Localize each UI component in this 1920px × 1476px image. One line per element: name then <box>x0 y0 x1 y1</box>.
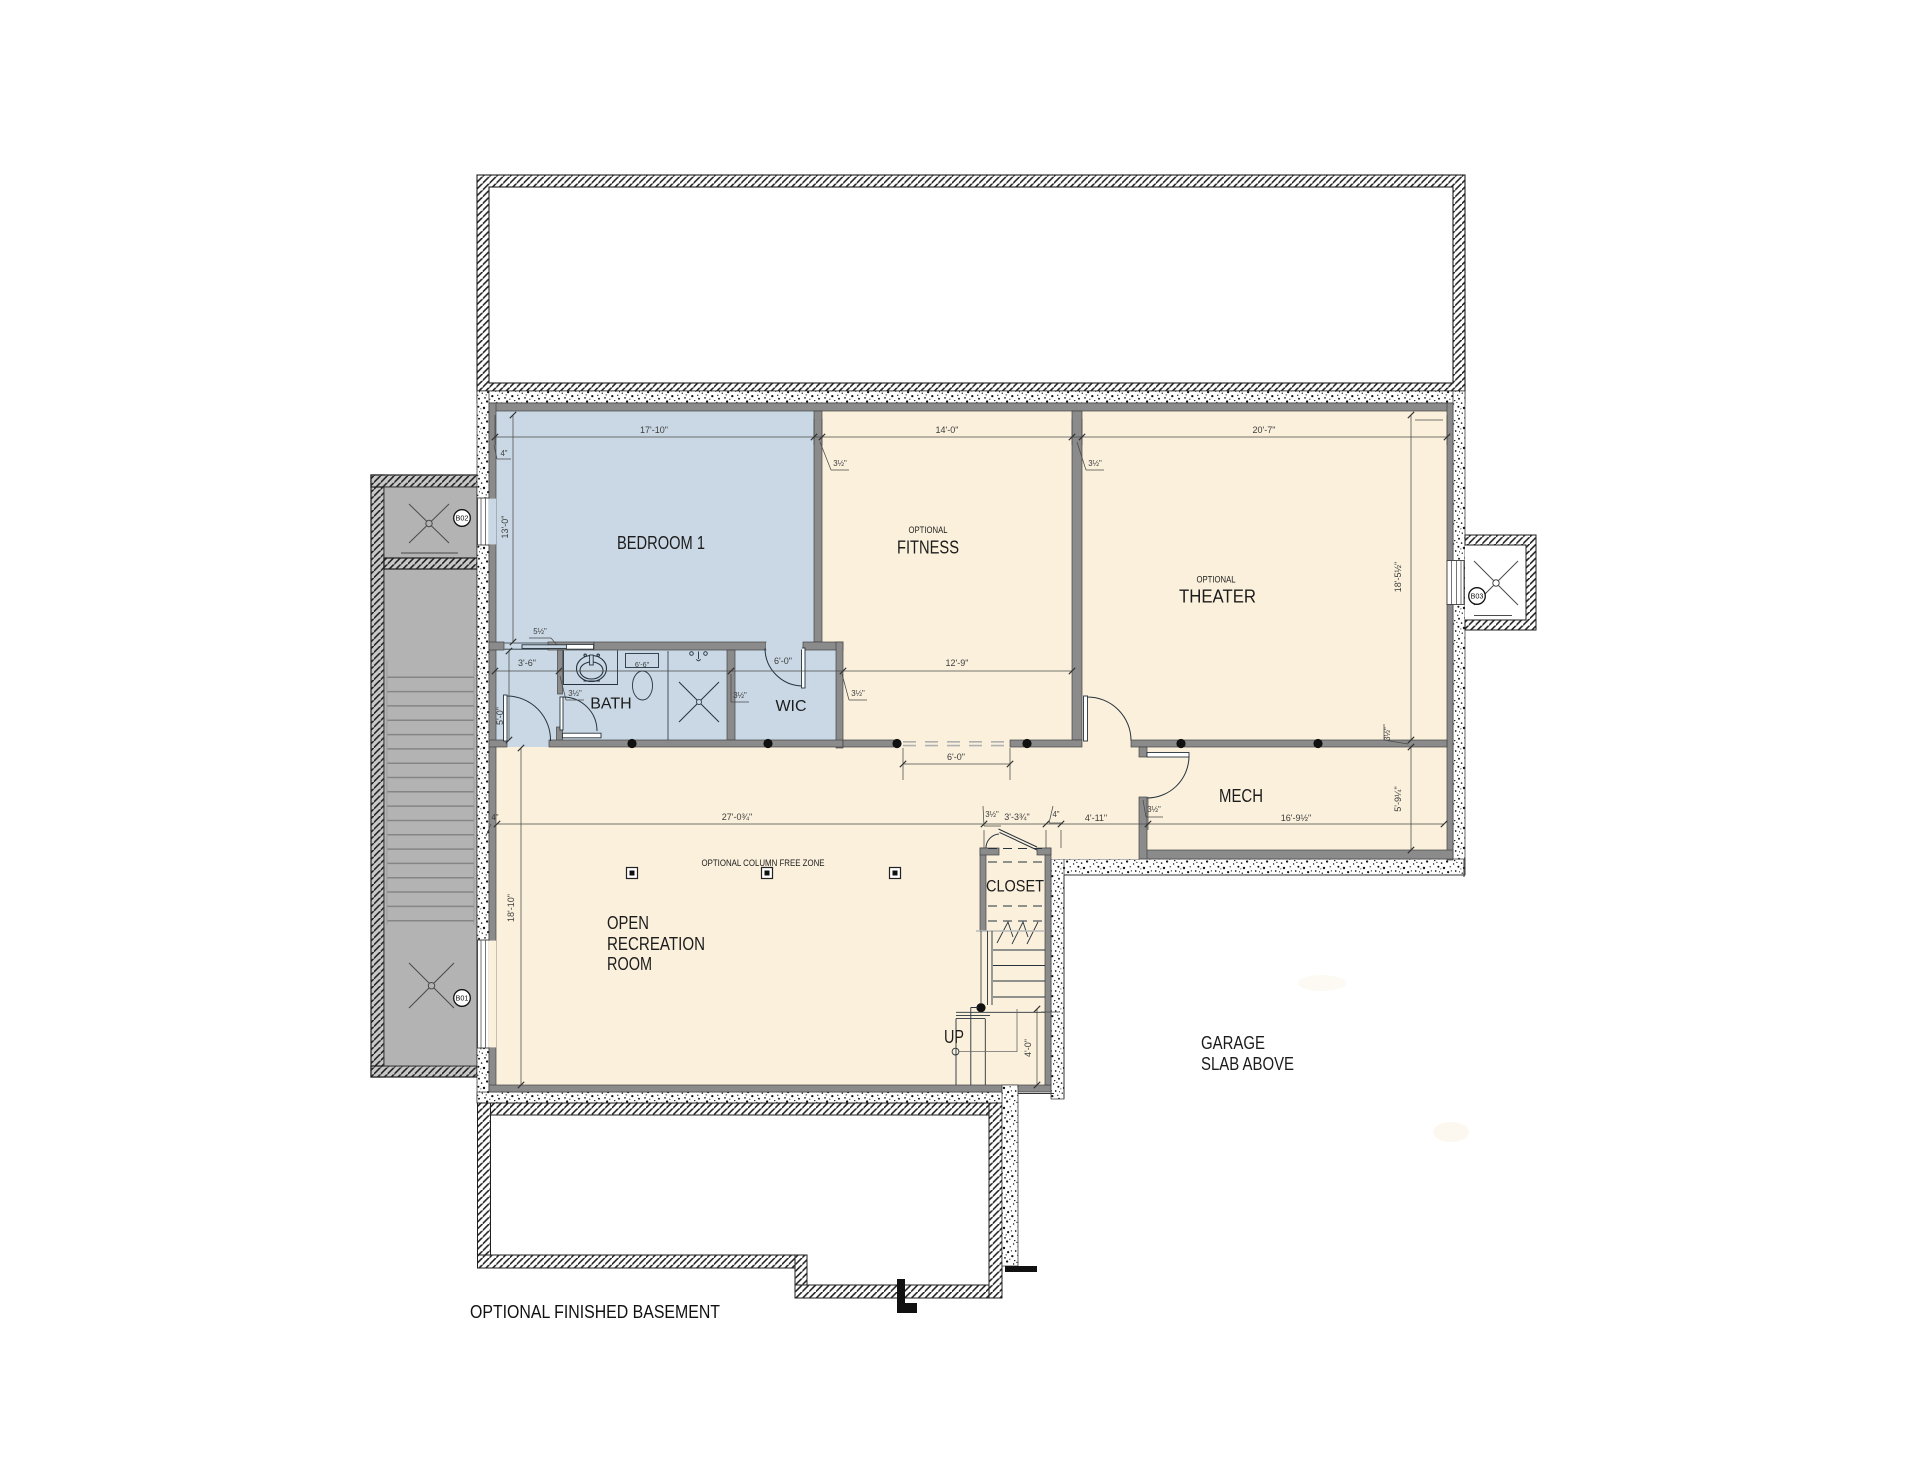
svg-text:3½": 3½" <box>851 689 865 698</box>
svg-text:RECREATION: RECREATION <box>607 934 705 954</box>
svg-text:OPTIONAL: OPTIONAL <box>1197 575 1236 585</box>
svg-text:SLAB ABOVE: SLAB ABOVE <box>1201 1054 1294 1074</box>
svg-text:OPTIONAL: OPTIONAL <box>909 525 948 535</box>
svg-text:B03: B03 <box>1471 592 1484 601</box>
svg-text:OPTIONAL FINISHED BASEMENT: OPTIONAL FINISHED BASEMENT <box>470 1301 720 1322</box>
svg-text:3½": 3½" <box>1088 459 1102 468</box>
svg-text:OPEN: OPEN <box>607 913 649 933</box>
svg-text:3'-6": 3'-6" <box>518 658 536 668</box>
svg-text:CLOSET: CLOSET <box>986 877 1044 896</box>
svg-text:14'-0": 14'-0" <box>936 425 959 435</box>
svg-text:6'-0": 6'-0" <box>947 752 965 762</box>
svg-text:OPTIONAL COLUMN FREE ZONE: OPTIONAL COLUMN FREE ZONE <box>702 858 825 868</box>
svg-text:3½": 3½" <box>985 810 999 819</box>
svg-text:16'-9½": 16'-9½" <box>1281 813 1311 823</box>
svg-text:WIC: WIC <box>775 698 806 715</box>
svg-text:5½": 5½" <box>533 627 547 636</box>
svg-text:6'-0": 6'-0" <box>774 656 792 666</box>
svg-text:4": 4" <box>1052 810 1059 819</box>
svg-text:27'-0¾": 27'-0¾" <box>722 812 752 822</box>
svg-text:BEDROOM 1: BEDROOM 1 <box>617 533 705 553</box>
svg-text:4": 4" <box>500 449 507 458</box>
svg-text:BATH: BATH <box>590 696 631 713</box>
svg-text:THEATER: THEATER <box>1179 587 1256 607</box>
svg-text:UP: UP <box>944 1027 964 1047</box>
svg-text:18'-5½": 18'-5½" <box>1393 562 1403 592</box>
svg-text:B02: B02 <box>456 514 469 523</box>
svg-text:B01: B01 <box>456 994 469 1003</box>
svg-text:ROOM: ROOM <box>607 954 652 974</box>
svg-text:3½": 3½" <box>568 689 582 698</box>
svg-text:4'-11": 4'-11" <box>1085 813 1107 823</box>
svg-text:3'-3¾": 3'-3¾" <box>1004 812 1029 822</box>
svg-text:20'-7": 20'-7" <box>1253 425 1276 435</box>
svg-text:4": 4" <box>491 813 498 822</box>
svg-text:MECH: MECH <box>1219 786 1263 806</box>
svg-text:FITNESS: FITNESS <box>897 538 959 558</box>
svg-text:12'-9": 12'-9" <box>946 658 969 668</box>
svg-text:3½": 3½" <box>733 691 747 700</box>
svg-text:3½": 3½" <box>1383 727 1392 741</box>
svg-text:GARAGE: GARAGE <box>1201 1033 1265 1053</box>
svg-text:13'-0": 13'-0" <box>500 516 510 539</box>
svg-text:3½": 3½" <box>833 459 847 468</box>
svg-text:5'-0": 5'-0" <box>495 707 505 725</box>
svg-text:4'-0": 4'-0" <box>1023 1039 1033 1057</box>
svg-text:5'-9¼": 5'-9¼" <box>1393 786 1403 811</box>
svg-text:17'-10": 17'-10" <box>640 425 668 435</box>
svg-text:6'-6": 6'-6" <box>635 660 650 669</box>
svg-text:3½": 3½" <box>1147 805 1161 814</box>
svg-text:18'-10": 18'-10" <box>506 894 516 922</box>
